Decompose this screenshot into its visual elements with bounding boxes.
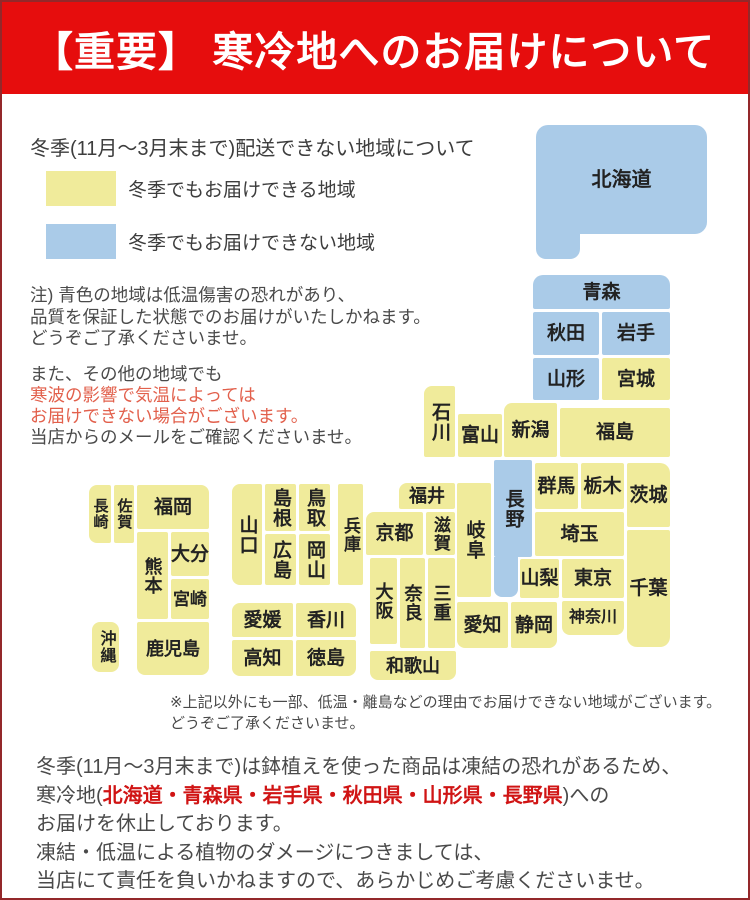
prefecture-miyazaki: 宮崎 (171, 579, 209, 619)
prefecture-wakayama: 和歌山 (370, 651, 456, 680)
text: 注) 青色の地域は低温傷害の恐れがあり、 (30, 285, 355, 305)
map-footnote: ※上記以外にも一部、低温・離島などの理由でお届けできない地域がございます。どうぞ… (170, 692, 721, 734)
prefecture-nagano-south (494, 557, 518, 597)
note-coldwave: また、その他の地域でも寒波の影響で気温によってはお届けできない場合がございます。… (30, 364, 362, 448)
prefecture-shimane: 島根 (265, 484, 296, 531)
legend-label: 冬季でもお届けできない地域 (128, 228, 375, 255)
prefecture-aichi: 愛知 (457, 602, 508, 648)
text: )への (563, 785, 610, 807)
text-line: 寒波の影響で気温によっては (30, 385, 362, 406)
prefecture-gunma: 群馬 (535, 463, 578, 509)
text: 寒冷地( (36, 785, 103, 807)
text-line: 凍結・低温による植物のダメージにつきましては、 (36, 839, 681, 868)
text-line: お届けを休止しております。 (36, 810, 681, 839)
prefecture-akita: 秋田 (533, 312, 599, 355)
prefecture-tochigi: 栃木 (581, 463, 624, 509)
text-line: 品質を保証した状態でのお届けがいたしかねます。 (30, 307, 431, 329)
legend-item-0: 冬季でもお届けできる地域 (46, 171, 356, 206)
prefecture-kochi: 高知 (232, 640, 293, 676)
page: 【重要】 寒冷地へのお届けについて 冬季(11月〜3月末まで)配送できない地域に… (0, 0, 750, 900)
prefecture-aomori: 青森 (533, 275, 670, 309)
prefecture-toyama: 富山 (458, 414, 502, 457)
text-line: 注) 青色の地域は低温傷害の恐れがあり、 (30, 285, 431, 307)
legend-swatch (46, 224, 116, 259)
text: どうぞご了承くださいませ。 (170, 715, 365, 732)
prefecture-ishikawa: 石川 (424, 386, 455, 457)
prefecture-tokushima: 徳島 (296, 640, 356, 676)
text: 品質を保証した状態でのお届けがいたしかねます。 (30, 307, 431, 327)
prefecture-hiroshima: 広島 (265, 534, 296, 585)
prefecture-chiba: 千葉 (627, 530, 670, 647)
prefecture-kanagawa: 神奈川 (562, 601, 624, 635)
text-line: どうぞご了承くださいませ。 (30, 328, 431, 350)
prefecture-gifu: 岐阜 (457, 483, 491, 597)
prefecture-okayama: 岡山 (299, 534, 330, 585)
prefecture-fukuoka: 福岡 (137, 485, 209, 529)
prefecture-saitama: 埼玉 (535, 512, 624, 556)
header-banner: 【重要】 寒冷地へのお届けについて (2, 2, 748, 94)
page-title: 【重要】 寒冷地へのお届けについて (32, 18, 715, 78)
prefecture-fukushima: 福島 (560, 408, 670, 457)
emphasized-text: お届けできない場合がございます。 (30, 406, 308, 426)
text: 当店にて責任を負いかねますので、あらかじめご考慮くださいませ。 (36, 870, 655, 892)
prefecture-yamaguchi: 山口 (232, 484, 262, 585)
text-line: 冬季(11月〜3月末まで)は鉢植えを使った商品は凍結の恐れがあるため、 (36, 753, 681, 782)
prefecture-kagawa: 香川 (296, 603, 356, 637)
prefecture-yamagata: 山形 (533, 358, 599, 400)
emphasized-text: 寒波の影響で気温によっては (30, 385, 256, 405)
text-line: ※上記以外にも一部、低温・離島などの理由でお届けできない地域がございます。 (170, 692, 721, 713)
prefecture-hyogo: 兵庫 (338, 484, 363, 585)
prefecture-ehime: 愛媛 (232, 603, 293, 637)
text: ※上記以外にも一部、低温・離島などの理由でお届けできない地域がございます。 (170, 694, 721, 711)
text-line: 寒冷地(北海道・青森県・岩手県・秋田県・山形県・長野県)への (36, 782, 681, 811)
text: どうぞご了承くださいませ。 (30, 328, 257, 348)
prefecture-iwate: 岩手 (602, 312, 670, 355)
prefecture-hokkaido-foot (536, 192, 580, 259)
text: 当店からのメールをご確認くださいませ。 (30, 427, 362, 447)
text: 凍結・低温による植物のダメージにつきましては、 (36, 842, 493, 864)
bottom-notice: 冬季(11月〜3月末まで)は鉢植えを使った商品は凍結の恐れがあるため、寒冷地(北… (36, 753, 681, 896)
text: 冬季(11月〜3月末まで)は鉢植えを使った商品は凍結の恐れがあるため、 (36, 756, 681, 778)
prefecture-mie: 三重 (428, 558, 455, 648)
prefecture-saga: 佐賀 (114, 485, 134, 543)
emphasized-text: 北海道・青森県・岩手県・秋田県・山形県・長野県 (103, 785, 563, 807)
prefecture-shizuoka: 静岡 (511, 602, 557, 648)
text-line: 当店にて責任を負いかねますので、あらかじめご考慮くださいませ。 (36, 867, 681, 896)
prefecture-kagoshima: 鹿児島 (137, 622, 209, 675)
text-line: また、その他の地域でも (30, 364, 362, 385)
text-line: お届けできない場合がございます。 (30, 406, 362, 427)
prefecture-hokkaido: 北海道 (536, 125, 707, 234)
prefecture-tottori: 鳥取 (299, 484, 330, 531)
text-line: どうぞご了承くださいませ。 (170, 713, 721, 734)
text: お届けを休止しております。 (36, 813, 293, 835)
prefecture-tokyo: 東京 (562, 559, 624, 598)
prefecture-oita: 大分 (171, 532, 209, 576)
text: また、その他の地域でも (30, 364, 223, 384)
prefecture-nara: 奈良 (400, 558, 425, 648)
legend-label: 冬季でもお届けできる地域 (128, 175, 356, 202)
intro-title: 冬季(11月〜3月末まで)配送できない地域について (30, 132, 475, 161)
prefecture-nagano: 長野 (494, 460, 532, 557)
prefecture-miyagi: 宮城 (602, 358, 670, 400)
prefecture-ibaraki: 茨城 (627, 463, 670, 527)
text-line: 当店からのメールをご確認くださいませ。 (30, 427, 362, 448)
prefecture-kumamoto: 熊本 (137, 532, 168, 619)
prefecture-shiga: 滋賀 (426, 512, 455, 555)
legend-swatch (46, 171, 116, 206)
legend-item-1: 冬季でもお届けできない地域 (46, 224, 375, 259)
prefecture-nagasaki: 長崎 (89, 485, 111, 543)
prefecture-okinawa: 沖縄 (92, 622, 119, 672)
prefecture-yamanashi: 山梨 (520, 559, 559, 598)
prefecture-kyoto: 京都 (366, 512, 423, 555)
note-quality: 注) 青色の地域は低温傷害の恐れがあり、品質を保証した状態でのお届けがいたしかね… (30, 285, 431, 350)
prefecture-fukui: 福井 (399, 483, 455, 509)
prefecture-osaka: 大阪 (370, 558, 397, 644)
prefecture-niigata: 新潟 (504, 403, 557, 457)
